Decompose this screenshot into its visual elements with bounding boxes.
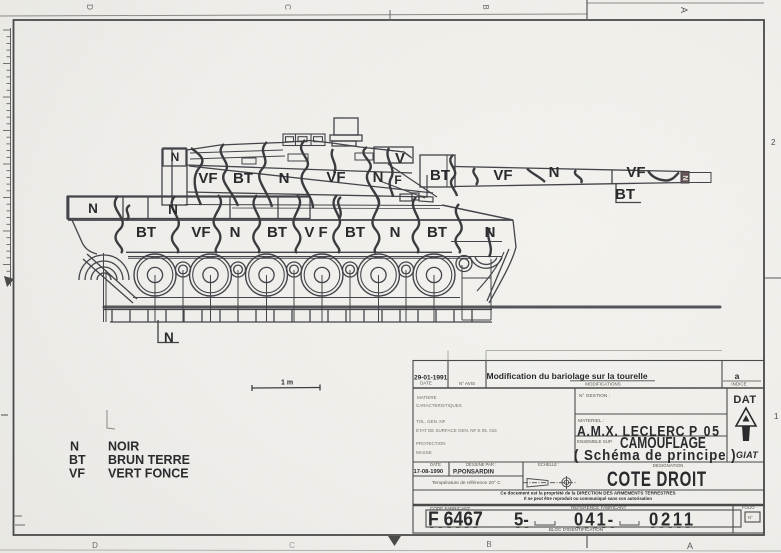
svg-text:0211: 0211 (649, 509, 696, 530)
svg-text:DAT: DAT (733, 394, 756, 406)
svg-text:B: B (486, 540, 491, 549)
svg-text:MASSE: MASSE (416, 450, 432, 455)
svg-text:DATE: DATE (430, 462, 441, 467)
svg-text:1 m: 1 m (281, 380, 293, 387)
svg-text:VF: VF (326, 169, 345, 186)
svg-text:VF: VF (198, 170, 217, 187)
svg-text:N: N (88, 201, 98, 216)
svg-text:VF: VF (626, 164, 645, 181)
svg-text:5-: 5- (514, 509, 529, 530)
svg-text:TOL. GEN. NF: TOL. GEN. NF (416, 419, 446, 424)
svg-text:N: N (373, 169, 384, 186)
svg-text:BT: BT (615, 186, 635, 203)
svg-text:VERT FONCE: VERT FONCE (108, 467, 189, 481)
svg-text:D: D (92, 541, 98, 550)
svg-text:N°: N° (748, 515, 753, 520)
svg-text:1: 1 (774, 412, 779, 421)
svg-text:N: N (230, 224, 241, 241)
svg-text:Température de référence 20° C: Température de référence 20° C (432, 480, 501, 486)
svg-text:D: D (85, 4, 94, 10)
svg-text:ECHELLE :: ECHELLE : (538, 462, 559, 467)
svg-text:a: a (735, 371, 740, 381)
svg-text:C: C (289, 541, 295, 550)
svg-text:Il ne peut être reproduit ou c: Il ne peut être reproduit ou communiqué … (524, 496, 652, 501)
svg-text:INDICE: INDICE (731, 382, 746, 387)
svg-text:P.PONSARDIN: P.PONSARDIN (453, 470, 494, 476)
svg-text:N: N (390, 224, 401, 241)
svg-text:FOLIO: FOLIO (742, 505, 755, 510)
svg-text:COTE DROIT: COTE DROIT (607, 466, 707, 490)
svg-text:BT: BT (345, 224, 365, 241)
svg-text:A: A (687, 541, 693, 551)
svg-text:NOIR: NOIR (108, 440, 139, 454)
svg-text:N: N (279, 170, 290, 187)
svg-text:N: N (485, 224, 496, 241)
svg-text:BRUN TERRE: BRUN TERRE (108, 453, 190, 467)
svg-text:( Schéma de principe ): ( Schéma de principe ) (574, 446, 736, 463)
svg-text:MODIFICATIONS: MODIFICATIONS (585, 381, 620, 386)
svg-text:CARACTERISTIQUES: CARACTERISTIQUES (416, 403, 462, 408)
svg-text:N: N (70, 440, 79, 454)
svg-text:F: F (394, 173, 401, 187)
svg-text:ETAT DE SURFACE GEN. NF E 05.: ETAT DE SURFACE GEN. NF E 05. 015 (416, 428, 497, 433)
svg-text:DATE: DATE (420, 381, 432, 386)
svg-text:Modification du bariolage sur: Modification du bariolage sur la tourell… (487, 371, 648, 381)
svg-text:VF: VF (69, 467, 85, 481)
svg-text:F 6467: F 6467 (428, 507, 483, 529)
svg-text:N: N (171, 150, 180, 164)
svg-text:PROTECTION: PROTECTION (416, 441, 446, 446)
svg-text:N: N (549, 164, 560, 181)
svg-text:Ce document est la propriété d: Ce document est la propriété de la DIREC… (500, 491, 675, 496)
svg-text:BT: BT (233, 170, 253, 187)
svg-text:N° GESTION :: N° GESTION : (579, 393, 610, 399)
svg-text:VF: VF (191, 224, 210, 241)
svg-text:BT: BT (69, 453, 86, 467)
svg-text:MATIERE: MATIERE (417, 395, 437, 400)
svg-text:BT: BT (136, 224, 156, 241)
svg-text:BT: BT (267, 224, 287, 241)
svg-text:N: N (681, 175, 690, 180)
svg-text:N° AVIS: N° AVIS (459, 381, 475, 386)
svg-text:A: A (679, 7, 689, 13)
svg-text:N: N (168, 202, 178, 217)
svg-text:GIAT: GIAT (736, 450, 759, 460)
svg-text:2: 2 (771, 138, 776, 147)
svg-text:DESSINE PAR :: DESSINE PAR : (466, 462, 496, 467)
svg-text:BLOC D'IDENTIFICATION: BLOC D'IDENTIFICATION (549, 527, 603, 532)
svg-text:VF: VF (493, 167, 512, 184)
svg-text:17-08-1990: 17-08-1990 (414, 469, 444, 475)
svg-text:BT: BT (430, 167, 450, 184)
svg-text:V F: V F (304, 224, 327, 241)
svg-text:C: C (283, 4, 292, 10)
svg-text:B: B (481, 4, 490, 9)
svg-text:V: V (395, 150, 405, 167)
svg-text:N: N (164, 330, 174, 345)
svg-text:BT: BT (427, 224, 447, 241)
svg-text:ENSEMBLE SUP.: ENSEMBLE SUP. (577, 439, 613, 444)
